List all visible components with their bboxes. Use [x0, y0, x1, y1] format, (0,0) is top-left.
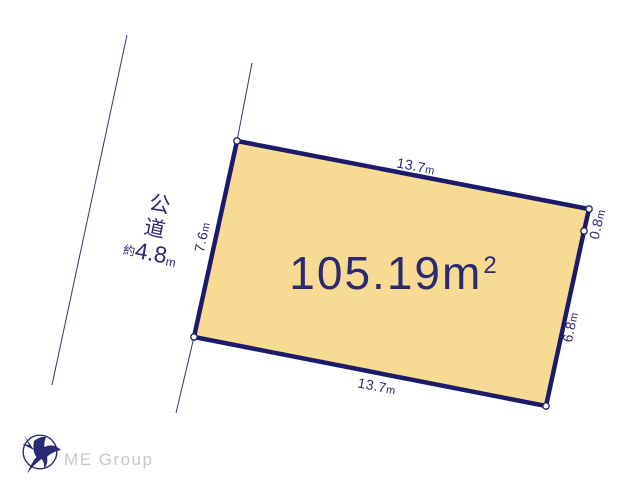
vertex-marker-bottom-right — [543, 403, 549, 409]
road-boundary-line-left — [52, 35, 127, 385]
me-group-logo — [20, 431, 62, 473]
vertex-marker-bottom-left — [191, 334, 197, 340]
company-name: ME Group — [64, 450, 153, 470]
vertex-marker-top-left — [234, 138, 240, 144]
plot-geometry — [0, 0, 640, 480]
area-exponent: 2 — [483, 252, 496, 279]
area-number: 105.19 — [289, 247, 442, 299]
parcel-area-label: 105.19m2 — [289, 246, 496, 300]
land-plot-diagram: 13.7m 0.8m 6.8m 13.7m 7.6m 105.19m2 公道 約… — [0, 0, 640, 480]
road-width-approx-prefix: 約 — [122, 243, 136, 259]
road-boundary-line-right-upper-extension — [237, 63, 252, 141]
road-width-value: 4.8 — [133, 237, 169, 268]
road-boundary-line-right-lower-extension — [176, 337, 194, 413]
area-unit: m — [442, 247, 482, 299]
